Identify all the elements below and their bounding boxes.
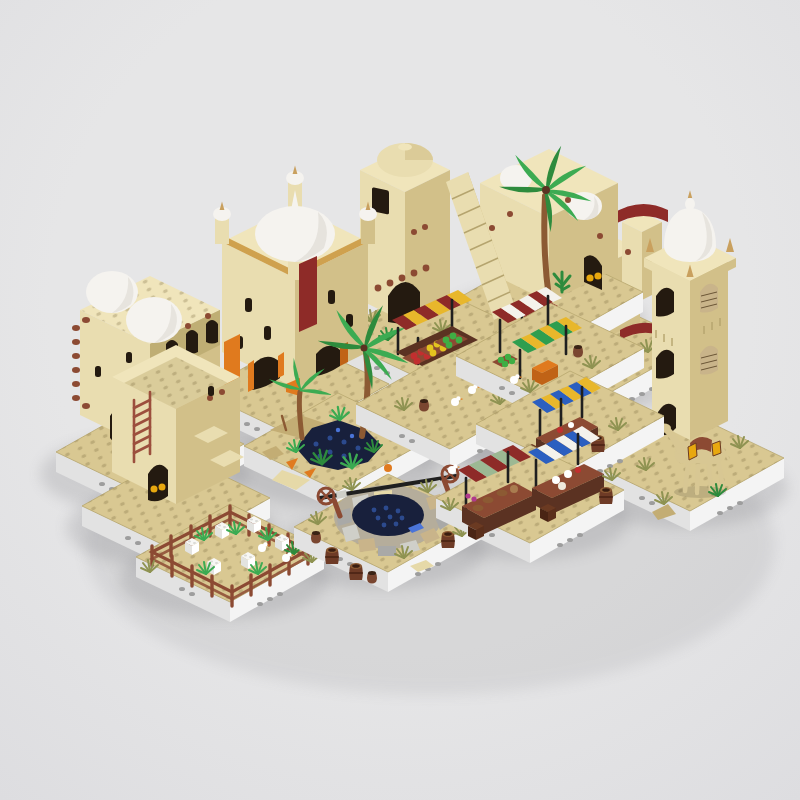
central-white-dome (255, 190, 335, 262)
render-page: { "meta": { "description": "3D rendered … (0, 0, 800, 800)
onion-dome (664, 190, 716, 262)
magenta-fruit (465, 493, 470, 498)
lego-desert-town-render (0, 0, 800, 800)
red-banner (299, 256, 317, 332)
black-arched-door (148, 465, 168, 501)
